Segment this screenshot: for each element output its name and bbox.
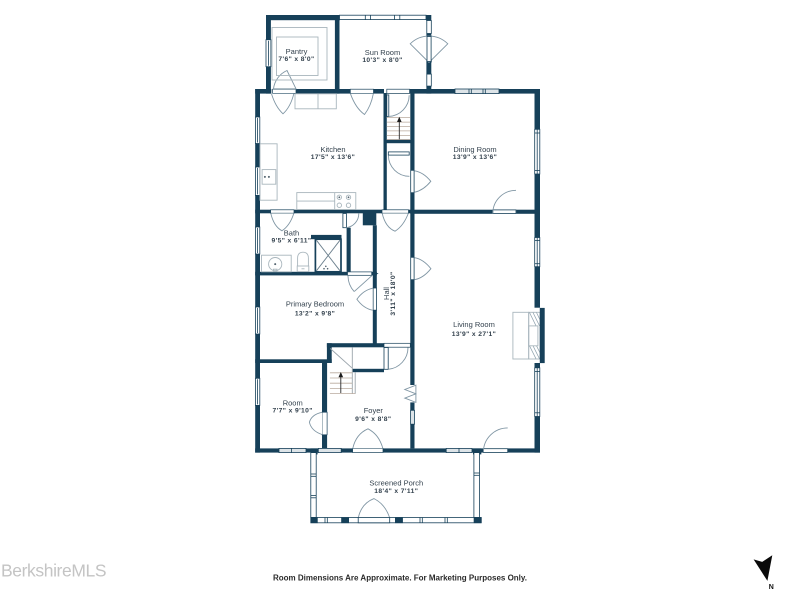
svg-text:Primary Bedroom: Primary Bedroom (286, 300, 344, 309)
svg-text:Bath: Bath (284, 229, 299, 238)
svg-text:13'9" x 13'6": 13'9" x 13'6" (453, 154, 497, 161)
svg-text:7'7" x 9'10": 7'7" x 9'10" (273, 407, 313, 414)
svg-text:17'5" x 13'6": 17'5" x 13'6" (311, 154, 355, 161)
svg-text:Room Dimensions Are Approximat: Room Dimensions Are Approximate. For Mar… (273, 573, 527, 582)
svg-text:Foyer: Foyer (364, 406, 384, 415)
svg-text:9'5" x 6'11": 9'5" x 6'11" (272, 237, 312, 244)
svg-text:13'9" x 27'1": 13'9" x 27'1" (452, 331, 496, 338)
svg-text:7'6" x 8'0": 7'6" x 8'0" (278, 56, 314, 63)
svg-text:18'4" x 7'11": 18'4" x 7'11" (374, 488, 418, 495)
svg-text:3'11" x 18'0": 3'11" x 18'0" (390, 271, 397, 315)
svg-text:N: N (769, 584, 774, 591)
svg-text:Living Room: Living Room (453, 320, 495, 329)
svg-text:Screened Porch: Screened Porch (369, 479, 423, 488)
svg-text:Dining Room: Dining Room (453, 145, 496, 154)
svg-text:13'2" x 9'8": 13'2" x 9'8" (295, 311, 335, 318)
svg-text:10'3" x 8'0": 10'3" x 8'0" (362, 57, 402, 64)
svg-text:Pantry: Pantry (286, 47, 308, 56)
svg-text:9'6" x 8'8": 9'6" x 8'8" (355, 416, 391, 423)
svg-text:Kitchen: Kitchen (320, 145, 345, 154)
svg-text:Sun Room: Sun Room (365, 48, 400, 57)
svg-text:Room: Room (283, 398, 303, 407)
svg-text:BerkshireMLS: BerkshireMLS (1, 561, 106, 581)
